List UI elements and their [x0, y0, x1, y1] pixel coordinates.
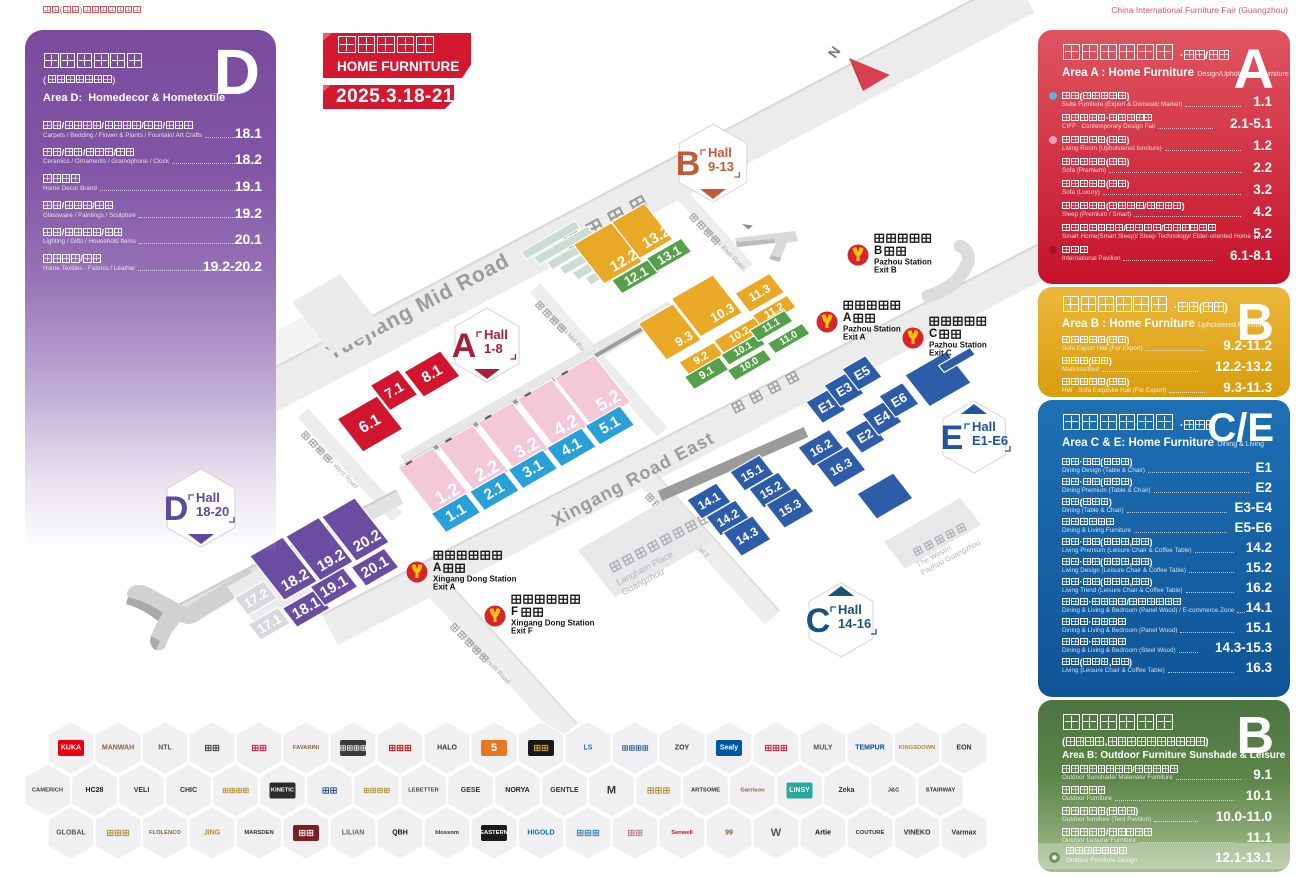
svg-text:GENTLE: GENTLE [550, 787, 579, 794]
svg-text:blossom: blossom [435, 830, 459, 836]
svg-text:VELI: VELI [134, 787, 150, 794]
svg-text:EASTERN: EASTERN [480, 830, 508, 836]
svg-text:LILIAN: LILIAN [342, 830, 365, 837]
svg-text:LS: LS [584, 745, 593, 752]
svg-text:Senwell: Senwell [671, 830, 693, 836]
svg-text:CAMERICH: CAMERICH [32, 788, 63, 794]
svg-text:Artie: Artie [815, 830, 831, 837]
svg-text:HIGOLD: HIGOLD [527, 830, 554, 837]
svg-text:GESE: GESE [461, 787, 481, 794]
svg-text:FAVARINI: FAVARINI [293, 745, 320, 751]
svg-text:NORYA: NORYA [505, 787, 529, 794]
svg-text:18-20: 18-20 [196, 504, 229, 519]
svg-text:J&C: J&C [888, 788, 900, 794]
svg-text:5: 5 [491, 742, 497, 754]
svg-text:LEBETTER: LEBETTER [408, 788, 439, 794]
svg-text:CHIC: CHIC [180, 787, 197, 794]
svg-text:VINEKO: VINEKO [904, 830, 931, 837]
svg-text:HC28: HC28 [86, 787, 104, 794]
svg-text:99: 99 [725, 830, 733, 837]
svg-text:GLOBAL: GLOBAL [56, 830, 86, 837]
svg-text:W: W [771, 827, 782, 839]
svg-text:NTL: NTL [158, 745, 172, 752]
svg-text:MARSDEN: MARSDEN [244, 830, 273, 836]
svg-text:QBH: QBH [392, 830, 408, 837]
svg-text:STAIRWAY: STAIRWAY [926, 788, 956, 794]
svg-text:KINGSDOWN: KINGSDOWN [899, 745, 936, 751]
svg-text:Sealy: Sealy [720, 745, 738, 752]
svg-text:HALO: HALO [437, 745, 457, 752]
svg-text:COUTURE: COUTURE [856, 830, 885, 836]
svg-text:FLOLENCO: FLOLENCO [149, 830, 181, 836]
svg-text:MULY: MULY [813, 745, 833, 752]
svg-text:Varmax: Varmax [952, 830, 977, 837]
svg-text:ZOY: ZOY [675, 745, 690, 752]
svg-text:JING: JING [204, 830, 221, 837]
svg-text:D: D [164, 490, 189, 528]
svg-text:EON: EON [956, 745, 971, 752]
svg-text:M: M [607, 785, 616, 797]
svg-text:KINETIC: KINETIC [271, 788, 295, 794]
svg-text:LINSY: LINSY [789, 787, 810, 794]
svg-text:KUKA: KUKA [61, 745, 81, 752]
svg-text:Zeka: Zeka [839, 787, 855, 794]
svg-text:TEMPUR: TEMPUR [855, 745, 885, 752]
svg-text:MANWAH: MANWAH [102, 745, 134, 752]
svg-text:ARTSOME: ARTSOME [691, 788, 720, 794]
svg-text:Garrison: Garrison [740, 788, 765, 794]
svg-text:Hall: Hall [196, 490, 220, 505]
